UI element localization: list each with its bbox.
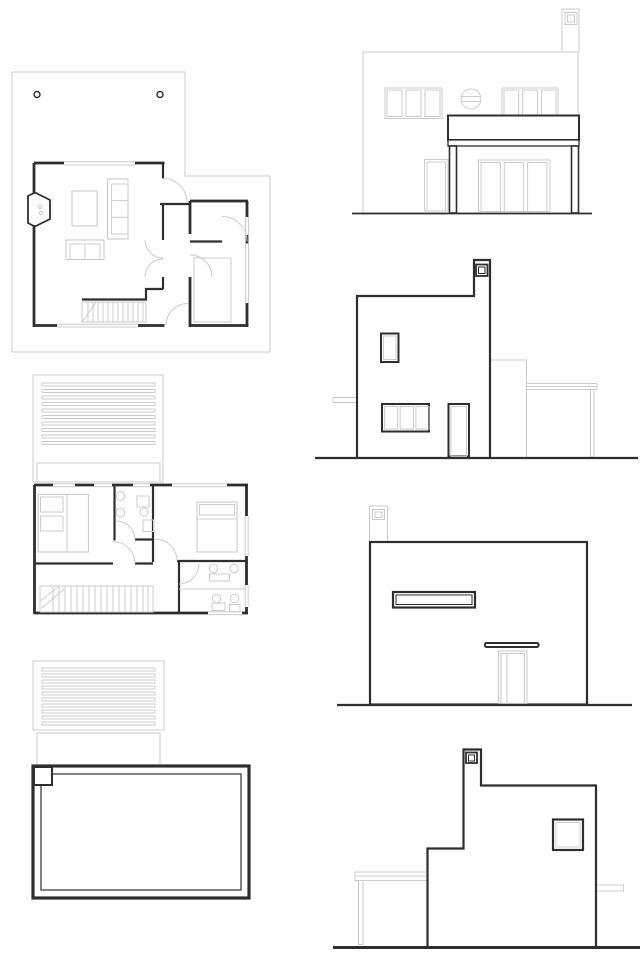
rear-elevation — [337, 506, 632, 705]
first-floor-plan — [33, 375, 248, 615]
pergola-post — [591, 390, 595, 458]
window-lower — [382, 404, 429, 432]
facade — [363, 9, 579, 213]
fireplace — [28, 193, 50, 226]
post-left — [450, 146, 457, 213]
interior-walls — [82, 163, 222, 300]
table — [72, 191, 97, 226]
roof-plan — [33, 661, 249, 898]
bed-left — [38, 495, 89, 553]
porch — [448, 116, 579, 214]
door-canopy — [485, 643, 539, 647]
side-door — [449, 404, 470, 457]
post-right — [572, 146, 579, 213]
rear-door — [499, 651, 528, 704]
stairs — [40, 586, 153, 612]
storage-area — [194, 258, 231, 322]
chimney — [34, 767, 52, 785]
front-elevation — [352, 9, 592, 214]
pergola-louvres — [33, 661, 164, 766]
drawing-canvas — [0, 0, 640, 957]
background-volume — [333, 360, 597, 457]
pergola-louvres — [33, 375, 163, 482]
bed-right — [197, 502, 237, 552]
window-upper — [381, 334, 399, 363]
bathroom-bottom-fixtures — [179, 564, 247, 611]
ground-floor-plan — [12, 72, 270, 352]
entry-door — [425, 160, 449, 212]
bathroom-top-fixtures — [116, 492, 153, 532]
building-outline — [428, 750, 597, 947]
building-outline — [357, 260, 490, 457]
drawing-sheet — [0, 0, 640, 957]
ribbon-window — [393, 592, 475, 608]
door-swings — [113, 521, 199, 584]
glazed-sliding-door — [479, 160, 551, 212]
terrace-posts — [34, 92, 163, 98]
side-ledge — [596, 885, 624, 891]
porthole-window — [461, 89, 481, 109]
pergola-post — [359, 881, 364, 945]
sofa-vertical — [108, 179, 129, 239]
chimney-cap — [466, 753, 477, 764]
sofa-horizontal — [66, 240, 104, 260]
right-side-elevation — [315, 260, 638, 458]
window-right — [502, 88, 558, 119]
chimney-cap — [476, 265, 488, 277]
left-side-elevation — [333, 750, 640, 948]
flat-roof — [33, 766, 249, 898]
building-outline — [370, 542, 587, 705]
canopy — [448, 116, 579, 141]
chimney — [370, 506, 388, 542]
window-left — [385, 88, 442, 119]
side-ledge — [333, 398, 357, 403]
stairs — [82, 302, 146, 322]
